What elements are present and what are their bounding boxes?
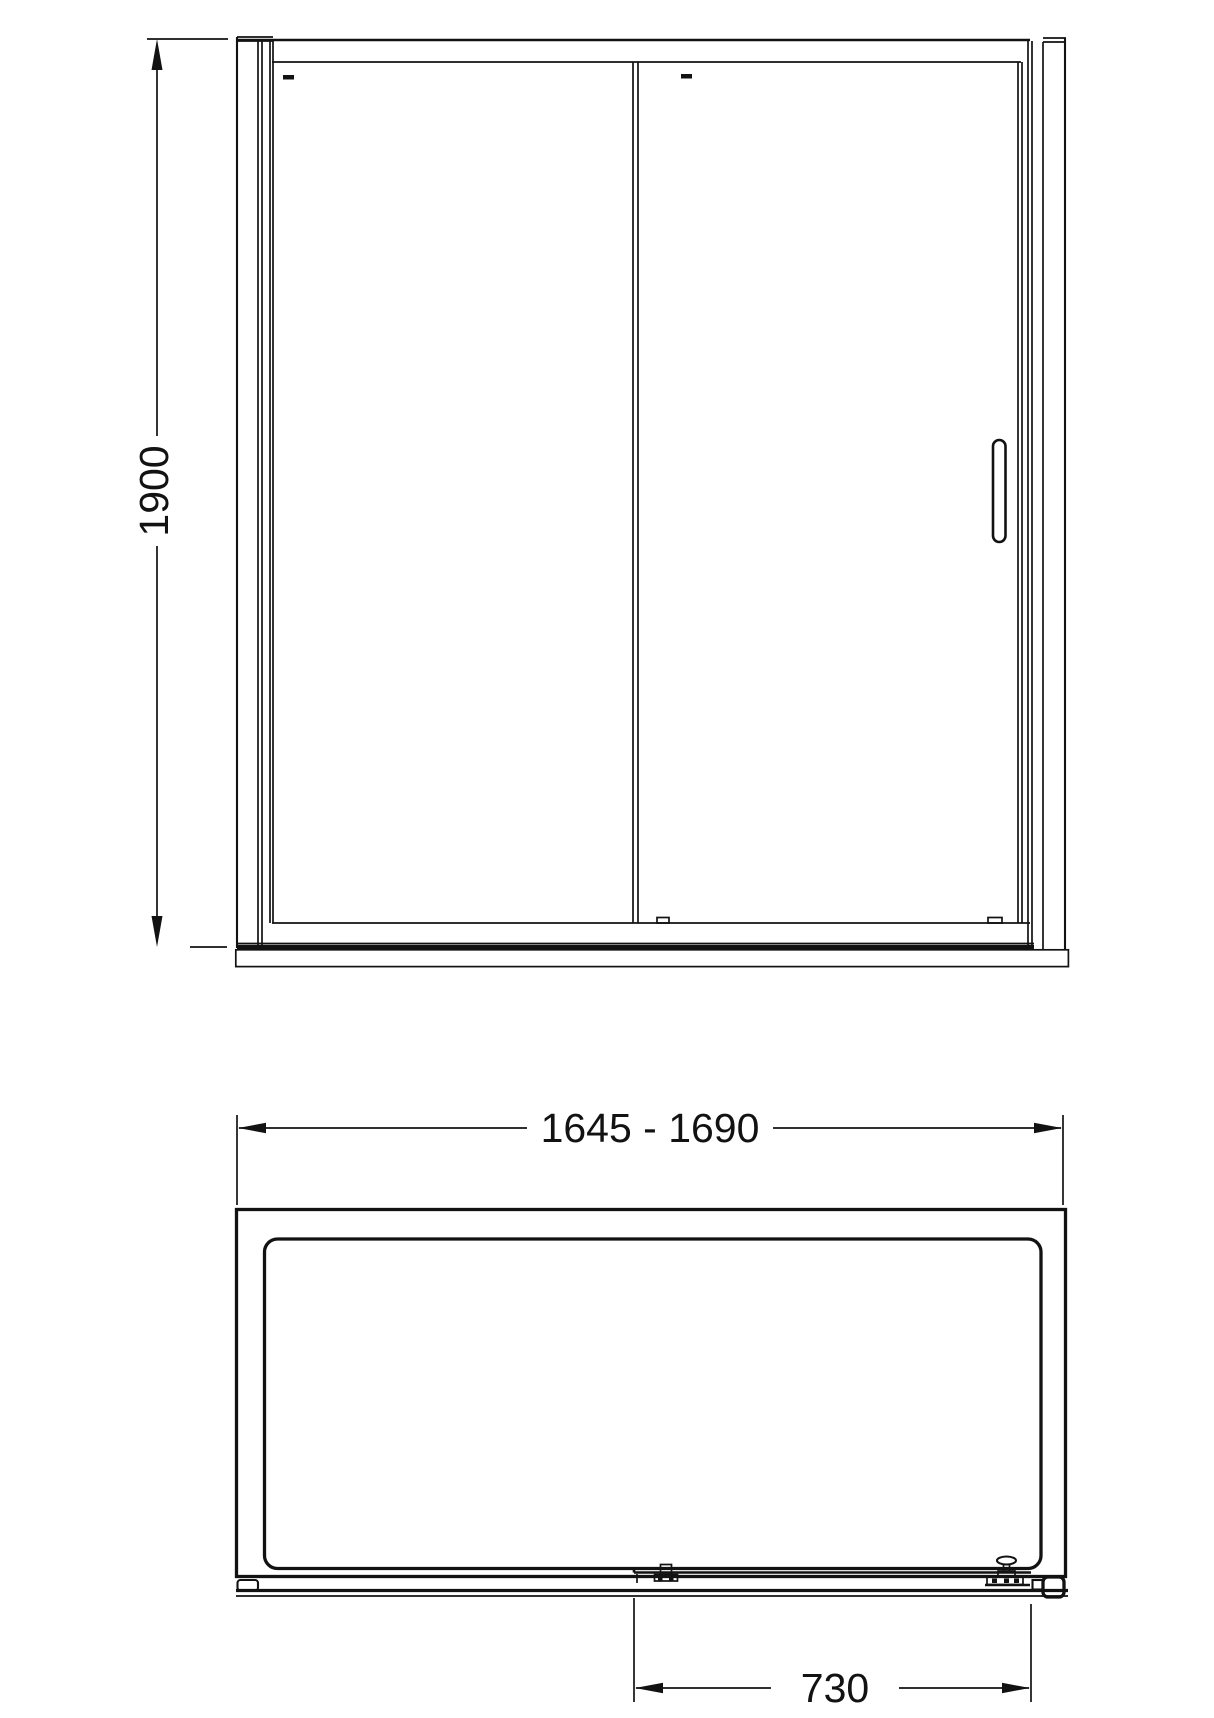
corner-fitting-right bbox=[1033, 1577, 1065, 1597]
corner-fitting-left bbox=[238, 1577, 259, 1591]
top-rail bbox=[237, 40, 1030, 62]
roller-left-foot-2 bbox=[669, 1577, 674, 1581]
sliding-door-right-edge bbox=[1018, 62, 1022, 923]
adjuster-knob bbox=[997, 1557, 1016, 1565]
width-dimension-label: 1645 - 1690 bbox=[541, 1105, 760, 1151]
front-elevation-view: 1900 bbox=[131, 37, 1068, 967]
roller-adjuster-right bbox=[985, 1557, 1030, 1586]
rail-end-cap-lines bbox=[1028, 41, 1032, 947]
arrow-down-icon bbox=[152, 916, 163, 947]
top-roller-mark-right bbox=[681, 74, 692, 79]
shower-door-technical-drawing: 1900 bbox=[0, 0, 1214, 1718]
roller-left-foot-1 bbox=[658, 1577, 663, 1581]
tray-front-edge-plan bbox=[236, 1591, 1068, 1597]
width-dimension: 1645 - 1690 bbox=[237, 1105, 1063, 1205]
panel-divider-lines bbox=[633, 62, 638, 923]
door-opening-dimension: 730 bbox=[634, 1598, 1031, 1711]
bottom-rail bbox=[237, 923, 1034, 947]
top-roller-mark-left bbox=[283, 75, 294, 80]
adjuster-foot-1 bbox=[992, 1579, 997, 1584]
plan-view: 1645 - 1690 bbox=[236, 1105, 1068, 1711]
door-opening-dimension-label: 730 bbox=[801, 1665, 869, 1711]
arrow-left-icon bbox=[635, 1683, 663, 1693]
drawing-svg: 1900 bbox=[0, 0, 1214, 1718]
arrow-up-icon bbox=[152, 39, 163, 70]
wall-profile-left bbox=[237, 37, 273, 948]
arrow-right-icon bbox=[1002, 1683, 1030, 1693]
arrow-right-icon bbox=[1034, 1123, 1062, 1133]
corner-bracket-right bbox=[1043, 1577, 1064, 1597]
rail-end-cap-right bbox=[1028, 41, 1032, 947]
arrow-left-icon bbox=[238, 1123, 266, 1133]
panel-divider bbox=[633, 62, 692, 923]
fixed-panel-left bbox=[270, 41, 294, 923]
adjuster-foot-3 bbox=[1014, 1579, 1019, 1584]
glass-plan-outline bbox=[265, 1239, 1042, 1569]
adjuster-foot-2 bbox=[1004, 1579, 1009, 1584]
wall-profile-right bbox=[1043, 38, 1066, 949]
height-dimension-label: 1900 bbox=[131, 445, 177, 536]
height-dimension: 1900 bbox=[131, 39, 228, 947]
wall-left-inner-lines bbox=[258, 41, 262, 948]
fixed-panel-left-edge bbox=[270, 41, 273, 923]
tray-plan-outline bbox=[237, 1210, 1066, 1577]
wall-right-top-cap bbox=[1043, 38, 1066, 42]
tray-front-outline bbox=[236, 950, 1069, 967]
door-handle bbox=[993, 440, 1006, 542]
sliding-door-panel bbox=[988, 62, 1022, 923]
shower-tray-front bbox=[236, 950, 1069, 967]
